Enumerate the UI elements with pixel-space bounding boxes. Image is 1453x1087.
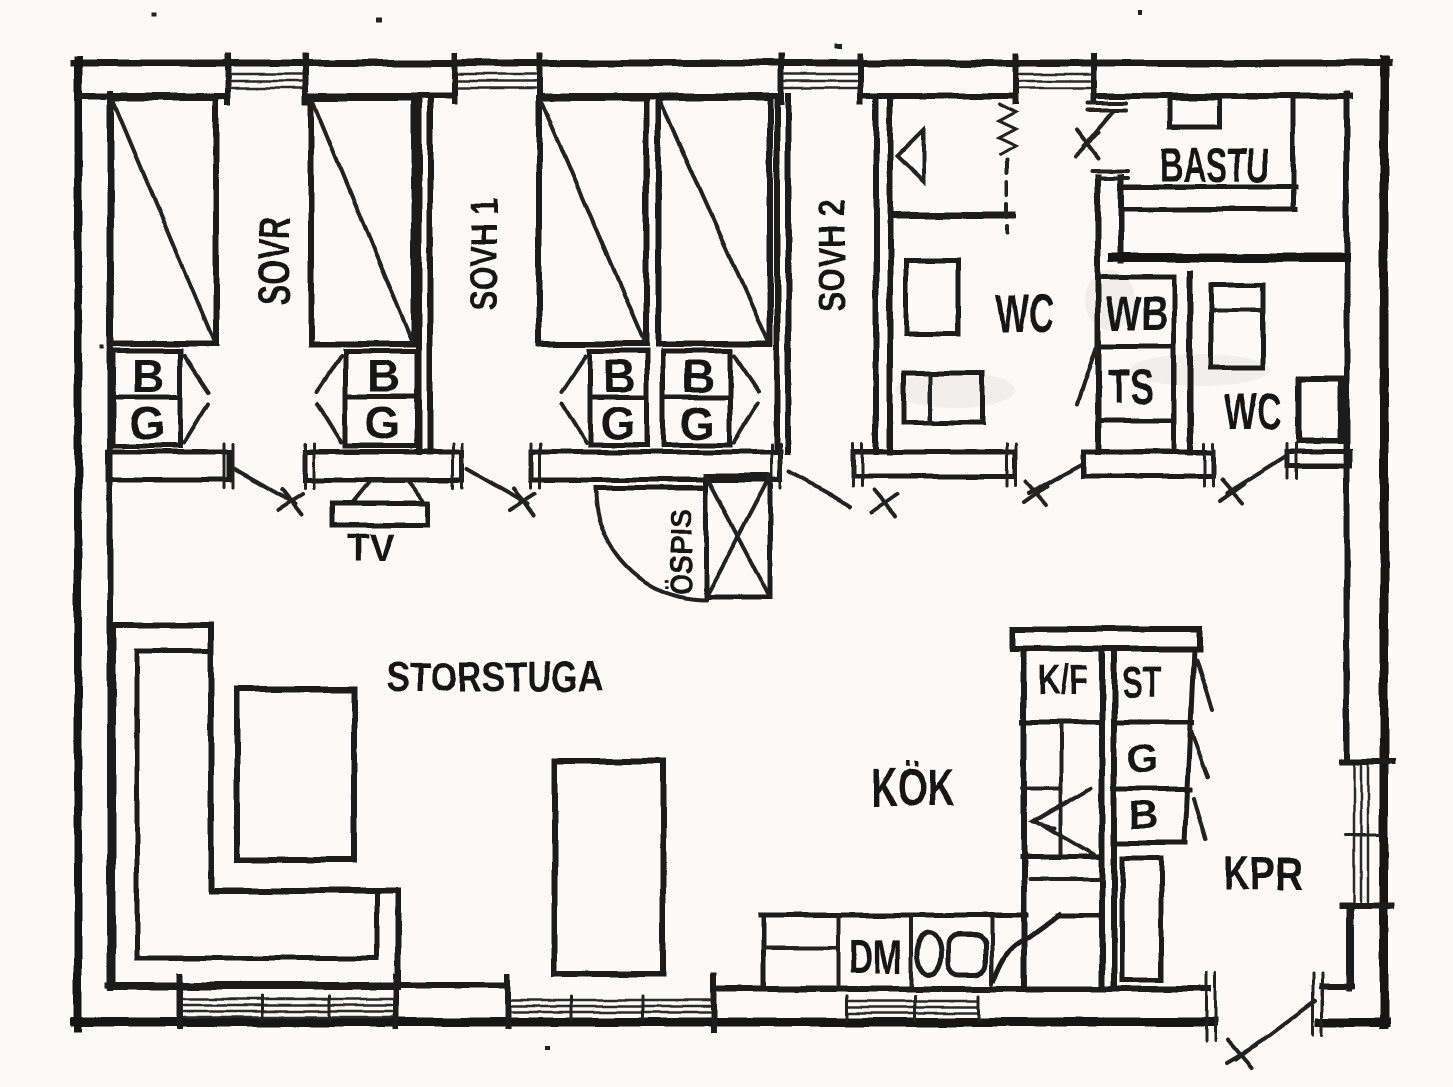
svg-text:G: G	[679, 397, 715, 449]
svg-text:G: G	[600, 397, 636, 449]
svg-text:G: G	[129, 397, 165, 449]
svg-text:TS: TS	[1107, 359, 1155, 415]
svg-text:B: B	[603, 350, 636, 402]
svg-text:B: B	[367, 350, 400, 402]
svg-text:G: G	[364, 397, 400, 449]
svg-text:SOVH 2: SOVH 2	[812, 200, 854, 312]
svg-text:ST: ST	[1122, 658, 1162, 707]
svg-text:KÖK: KÖK	[871, 758, 954, 818]
svg-text:DM: DM	[849, 930, 902, 983]
svg-text:SOVR: SOVR	[250, 217, 299, 305]
svg-text:WC: WC	[996, 284, 1054, 344]
svg-text:B: B	[682, 350, 715, 402]
svg-text:KPR: KPR	[1223, 848, 1302, 901]
svg-text:G: G	[1127, 737, 1158, 781]
svg-text:WC: WC	[1224, 384, 1282, 440]
svg-text:ÖSPIS: ÖSPIS	[664, 509, 699, 595]
svg-text:STORSTUGA: STORSTUGA	[387, 653, 603, 700]
svg-text:TV: TV	[347, 527, 396, 569]
svg-text:K/F: K/F	[1038, 656, 1088, 703]
svg-text:WB: WB	[1106, 288, 1168, 341]
svg-text:SOVH 1: SOVH 1	[464, 198, 506, 310]
svg-text:B: B	[1129, 794, 1158, 838]
svg-text:BASTU: BASTU	[1160, 140, 1270, 193]
svg-text:B: B	[132, 350, 165, 402]
